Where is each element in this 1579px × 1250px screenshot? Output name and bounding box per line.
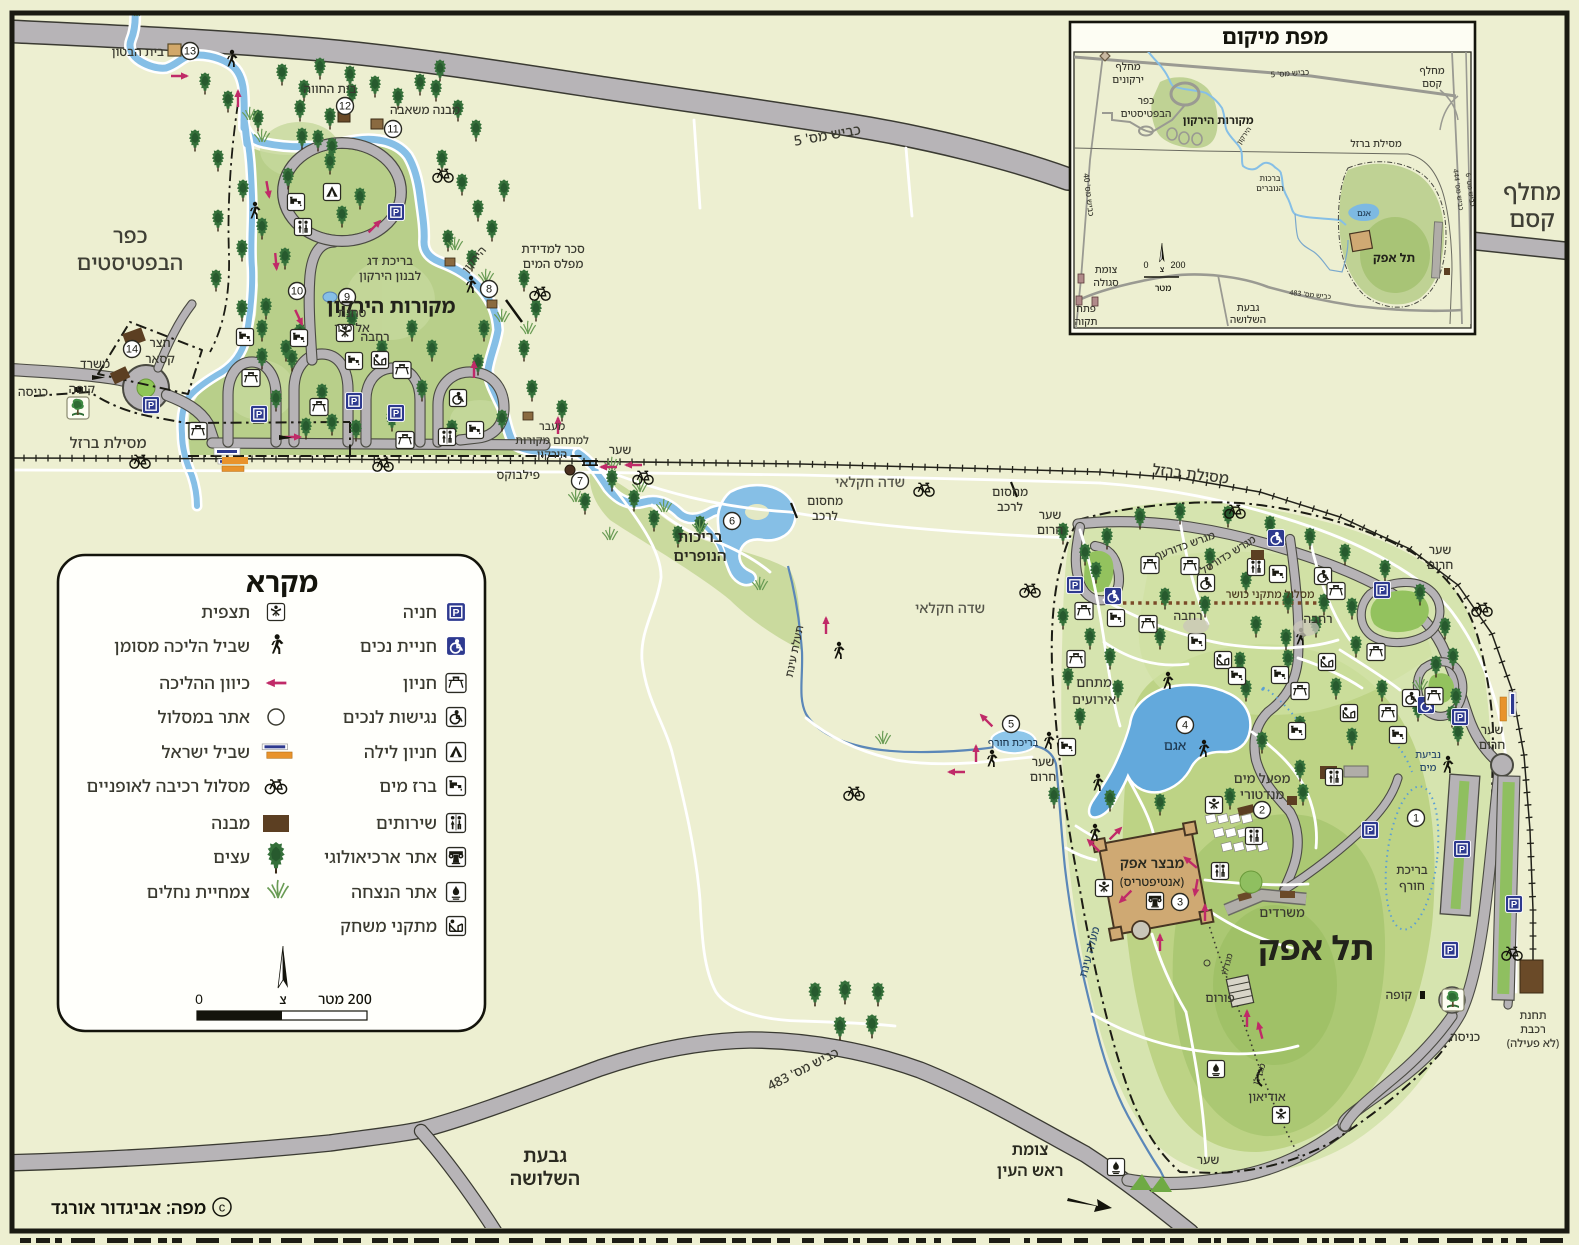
svg-text:6: 6 (729, 516, 735, 528)
svg-text:14: 14 (126, 344, 138, 356)
svg-text:2: 2 (1259, 805, 1265, 817)
svg-text:10: 10 (291, 286, 303, 298)
svg-text:200: 200 (1170, 260, 1185, 270)
svg-text:8: 8 (486, 284, 492, 296)
svg-text:5: 5 (1008, 719, 1014, 731)
svg-text:13: 13 (184, 46, 196, 58)
svg-text:1: 1 (1413, 813, 1419, 825)
svg-text:3: 3 (1177, 897, 1183, 909)
svg-text:c: c (219, 1200, 226, 1215)
svg-text:4: 4 (1182, 720, 1188, 732)
svg-text:0: 0 (195, 991, 203, 1007)
svg-text:7: 7 (577, 476, 583, 488)
svg-text:0: 0 (1143, 260, 1148, 270)
svg-text:12: 12 (339, 101, 351, 113)
svg-text:11: 11 (387, 124, 398, 136)
